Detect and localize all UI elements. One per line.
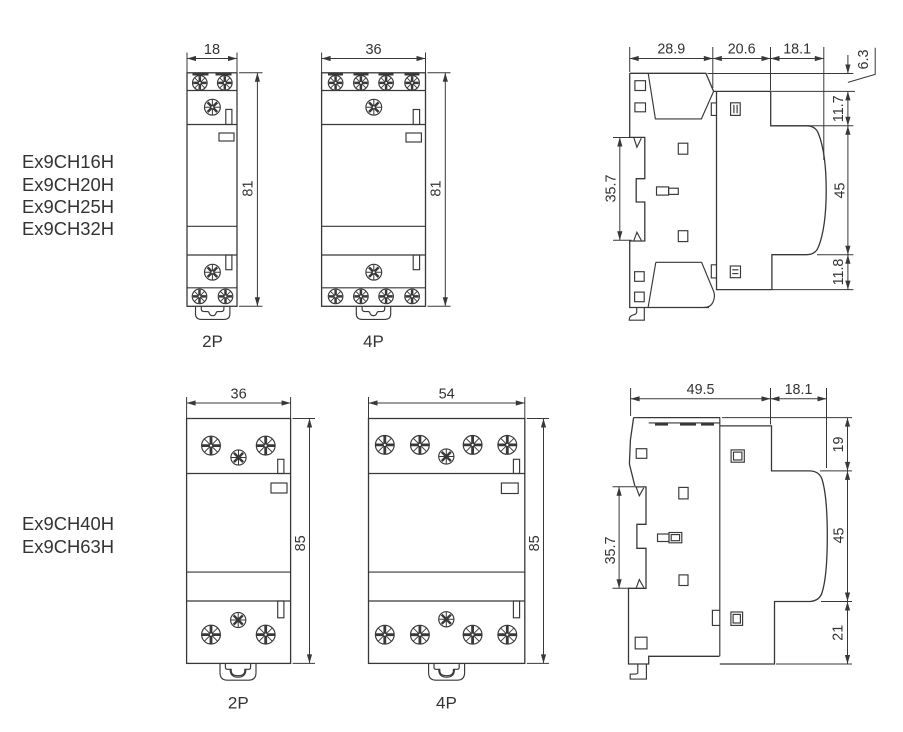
svg-text:20.6: 20.6 [728,42,756,58]
svg-text:Ex9CH32H: Ex9CH32H [22,218,114,239]
svg-text:49.5: 49.5 [687,382,715,398]
svg-text:Ex9CH20H: Ex9CH20H [22,174,114,195]
svg-text:18: 18 [204,42,220,58]
svg-text:11.8: 11.8 [831,259,847,286]
svg-text:35.7: 35.7 [604,175,620,203]
svg-text:85: 85 [293,535,309,551]
svg-text:18.1: 18.1 [785,382,813,398]
svg-text:Ex9CH63H: Ex9CH63H [22,536,114,557]
svg-text:Ex9CH40H: Ex9CH40H [22,513,114,534]
svg-text:4P: 4P [436,694,457,713]
svg-text:Ex9CH25H: Ex9CH25H [22,196,114,217]
svg-text:45: 45 [832,183,848,199]
svg-text:81: 81 [429,180,445,196]
svg-text:81: 81 [241,180,257,196]
svg-text:2P: 2P [202,332,223,351]
svg-text:35.7: 35.7 [603,537,619,565]
svg-text:28.9: 28.9 [657,42,685,58]
svg-text:36: 36 [365,42,381,58]
svg-text:36: 36 [231,386,247,402]
svg-text:85: 85 [527,535,543,551]
svg-text:19: 19 [831,437,847,453]
svg-text:11.7: 11.7 [831,95,847,122]
svg-text:21: 21 [831,625,847,641]
svg-text:4P: 4P [363,332,384,351]
svg-text:2P: 2P [228,694,249,713]
svg-text:Ex9CH16H: Ex9CH16H [22,151,114,172]
svg-text:45: 45 [832,528,848,544]
svg-text:6.3: 6.3 [856,50,872,70]
svg-text:18.1: 18.1 [783,42,811,58]
svg-text:54: 54 [439,386,455,402]
